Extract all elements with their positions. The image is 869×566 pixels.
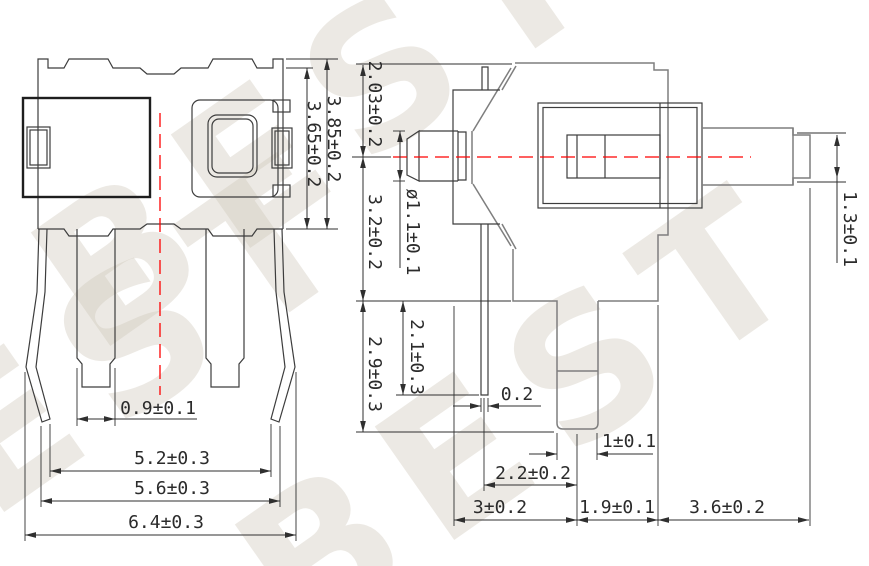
dim-leg-span-outer: 6.4±0.3 xyxy=(128,512,204,533)
dim-pin-head-diameter: ø1.1±0.1 xyxy=(402,189,423,276)
dim-boss-center-to-back: 1.9±0.1 xyxy=(579,497,655,518)
dim-top-to-centerline: 2.03±0.2 xyxy=(364,61,385,148)
dim-base-to-leg-tip: 2.9±0.3 xyxy=(364,336,385,412)
watermark: BEST BEST BEST xyxy=(0,0,854,566)
dim-front-to-boss-center: 3±0.2 xyxy=(473,497,527,518)
dim-centerline-to-base: 3.2±0.2 xyxy=(364,194,385,270)
switch-dimension-drawing: BEST BEST BEST xyxy=(0,0,869,566)
dim-boss-width: 1±0.1 xyxy=(602,431,656,452)
dim-overall-height: 3.85±0.2 xyxy=(323,96,344,183)
dim-leg-thickness: 0.2 xyxy=(501,384,534,405)
dim-leg-to-boss-center: 2.2±0.2 xyxy=(495,463,571,484)
dim-plunger-length: 3.6±0.2 xyxy=(689,497,765,518)
dim-leg-span-mid: 5.6±0.3 xyxy=(134,478,210,499)
dim-body-height: 3.65±0.2 xyxy=(303,101,324,188)
dim-base-to-pin-tip: 2.1±0.3 xyxy=(406,319,427,395)
dim-leg-span-inner: 5.2±0.3 xyxy=(134,448,210,469)
technical-drawing-page: BEST BEST BEST xyxy=(0,0,869,566)
dim-inner-leg-width: 0.9±0.1 xyxy=(120,398,196,419)
dim-plunger-tip-height: 1.3±0.1 xyxy=(839,191,860,267)
